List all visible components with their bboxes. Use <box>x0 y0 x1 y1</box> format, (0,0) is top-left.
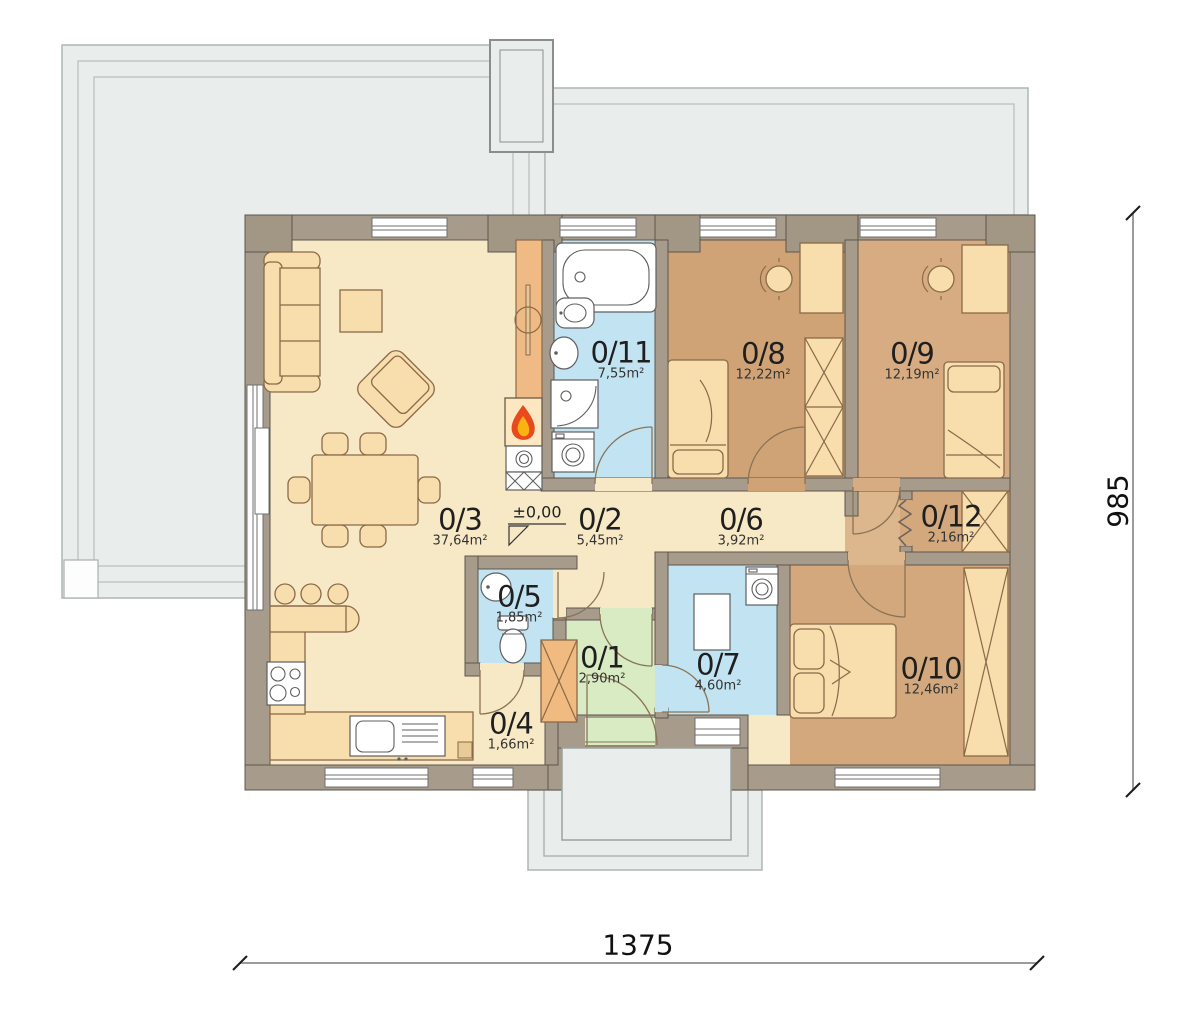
floor-plan-drawing <box>0 0 1200 1032</box>
chimney-wall <box>515 240 542 400</box>
dishwasher-icon <box>458 742 472 758</box>
washbasin-5-icon <box>481 573 511 601</box>
stove-icon <box>267 662 305 705</box>
bed-single-9-icon <box>944 362 1004 478</box>
roof-column <box>490 40 553 152</box>
floor-plan-page: 0/12,90m² 0/25,45m² 0/337,64m² 0/41,66m²… <box>0 0 1200 1032</box>
washing-machine-icon <box>552 432 594 472</box>
room-0-1-floor <box>566 620 655 718</box>
utility-tray-icon <box>694 594 730 650</box>
dimension-height-label: 985 <box>1102 474 1135 527</box>
fireplace-icon <box>505 398 542 490</box>
elevation-label: ±0,00 <box>512 503 561 522</box>
window-utility-bottom <box>695 718 740 745</box>
desk-9-icon <box>962 245 1008 313</box>
bed-single-8-icon <box>668 360 728 478</box>
washing-machine-7-icon <box>746 567 778 605</box>
coffee-table-icon <box>340 290 382 332</box>
toilet-icon <box>498 616 528 663</box>
bar-stools-icon <box>275 584 348 604</box>
dimension-width-label: 1375 <box>602 929 673 962</box>
window-bedroom9-top <box>860 218 936 237</box>
wardrobe-8-icon <box>805 338 843 476</box>
window-bedroom10-bottom <box>835 768 940 787</box>
terrace-footing <box>64 560 98 598</box>
desk-8-icon <box>800 243 843 313</box>
wardrobe-entry-icon <box>541 640 577 722</box>
wardrobe-10-icon <box>964 568 1008 756</box>
bed-double-10-icon <box>790 624 896 718</box>
sofa-icon <box>264 252 320 392</box>
window-kitchen-bottom <box>325 768 428 787</box>
porch-platform <box>562 748 731 840</box>
bidet-icon <box>556 298 594 328</box>
bar-counter-icon <box>270 606 359 632</box>
window-living-top <box>372 218 447 237</box>
window-pantry-bottom <box>473 768 513 787</box>
shower-icon <box>551 380 598 428</box>
wardrobe-12-icon <box>962 491 1008 552</box>
sink-icon <box>350 716 445 761</box>
window-bath-top <box>560 218 636 237</box>
window-bedroom8-top <box>700 218 776 237</box>
washbasin-icon <box>550 337 578 369</box>
